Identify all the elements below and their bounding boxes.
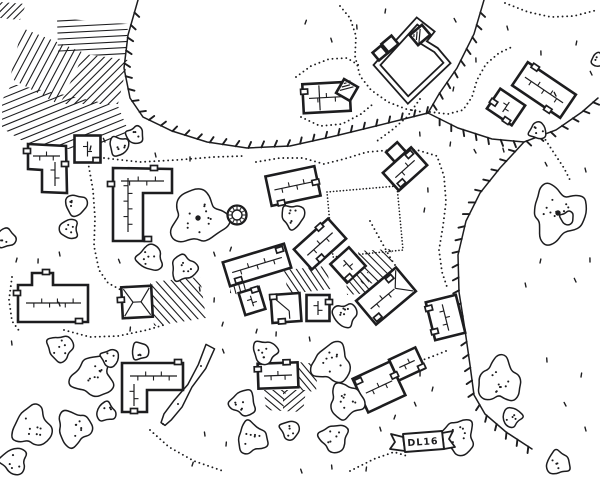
footpath [419, 350, 447, 362]
footpath [504, 2, 595, 18]
road-tick [528, 447, 529, 453]
road-tick [475, 190, 481, 191]
road-tick [465, 368, 470, 372]
road-tick [517, 439, 518, 445]
road-tick [573, 118, 579, 121]
road-tick [593, 102, 599, 104]
map-label-banner [390, 431, 455, 452]
building [108, 166, 173, 242]
road-tick [488, 138, 489, 144]
tree [254, 341, 279, 364]
road-tick [453, 277, 459, 280]
chimney [43, 270, 50, 275]
road-tick [134, 12, 139, 16]
building [330, 247, 365, 282]
road-tick [468, 393, 473, 397]
grass-tick [414, 402, 416, 406]
grass-tick [540, 259, 541, 263]
building [14, 270, 89, 324]
grass-tick [525, 283, 526, 287]
field [23, 8, 162, 147]
road [458, 142, 532, 449]
road-tick [161, 122, 166, 126]
chimney [275, 246, 283, 253]
tree [171, 189, 231, 242]
tree [528, 122, 546, 139]
grass-tick [331, 38, 332, 42]
road-tick [562, 126, 568, 129]
tree [311, 342, 351, 383]
building [265, 166, 322, 208]
chimney [62, 162, 69, 167]
grass-tick [394, 415, 395, 419]
road-tick [495, 424, 497, 430]
tree [173, 254, 199, 281]
footpath [103, 155, 242, 163]
footpath [149, 429, 222, 471]
grass-tick [574, 278, 576, 282]
chimney [277, 200, 285, 206]
chimney [301, 89, 308, 94]
road-tick [149, 116, 154, 120]
road-tick [453, 264, 459, 267]
road-tick [132, 100, 138, 101]
tree [332, 304, 357, 328]
road-tick [185, 130, 190, 135]
grass-tick [454, 18, 456, 22]
road-tick [440, 93, 443, 99]
tree [479, 355, 521, 401]
tree [59, 410, 92, 448]
building [24, 144, 69, 193]
chimney [270, 294, 277, 299]
grass-tick [450, 142, 451, 146]
tree [110, 136, 129, 156]
tree [503, 408, 523, 428]
footpath [369, 220, 398, 270]
chimney [24, 149, 31, 154]
chimney [235, 277, 243, 284]
grass-tick [222, 322, 223, 326]
road-tick [453, 290, 459, 293]
tree [66, 195, 88, 216]
road-tick [526, 141, 531, 145]
grass-tick [581, 373, 582, 377]
village-map [0, 0, 600, 481]
building [238, 286, 265, 315]
road-tick [210, 137, 214, 142]
chimney [151, 166, 158, 171]
chimney [312, 179, 320, 185]
grass-tick [301, 469, 302, 473]
chimney [117, 297, 124, 302]
tree [279, 421, 299, 440]
road-tick [472, 37, 476, 42]
grass-tick [453, 87, 454, 91]
grass-tick [155, 153, 156, 157]
road-tick [173, 126, 178, 131]
grass-tick [119, 259, 120, 263]
chimney [145, 237, 152, 242]
tree [47, 336, 74, 362]
road-tick [509, 150, 515, 152]
road-tick [500, 159, 506, 161]
grass-tick [432, 387, 433, 391]
tree [318, 425, 349, 452]
road-tick [433, 104, 437, 109]
road-tick [467, 380, 472, 384]
grass-tick [585, 168, 586, 172]
footpath [63, 324, 164, 338]
grass-tick [385, 9, 386, 13]
grass-tick [503, 148, 504, 152]
tree [133, 342, 149, 360]
tree [59, 219, 77, 238]
road-tick [236, 141, 240, 146]
tree [239, 420, 268, 454]
chimney [254, 367, 261, 372]
village-well [228, 206, 247, 225]
building [424, 295, 465, 341]
road-tick [483, 180, 489, 181]
road-tick [476, 134, 477, 140]
footpath [349, 452, 406, 472]
grass-tick [230, 247, 231, 251]
building [307, 295, 333, 321]
road-tick [261, 141, 264, 147]
grass-tick [16, 258, 17, 262]
road-tick [139, 111, 145, 112]
tree [135, 244, 162, 270]
chimney [326, 300, 333, 305]
footpath [295, 57, 359, 78]
road-tick [447, 82, 450, 88]
grass-tick [256, 329, 257, 333]
grass-tick [380, 427, 381, 431]
road-tick [197, 134, 202, 139]
road-tick [461, 60, 465, 65]
road-tick [583, 111, 589, 113]
road-tick [131, 25, 136, 29]
tree [12, 404, 52, 445]
chimney [283, 360, 290, 365]
building [485, 88, 525, 127]
grass-tick [585, 427, 586, 431]
field [41, 0, 143, 88]
road-tick [274, 141, 277, 147]
chimney [76, 319, 83, 324]
road-tick [248, 142, 251, 148]
chimney [14, 291, 21, 296]
tree [282, 206, 305, 230]
chimney [431, 328, 439, 335]
grass-tick [192, 462, 193, 466]
chimney [131, 409, 138, 414]
grass-tick [507, 26, 508, 30]
road-tick [223, 139, 227, 144]
chimney [425, 305, 433, 312]
grass-tick [309, 337, 310, 341]
tree [97, 401, 116, 421]
road-tick [125, 63, 130, 67]
dotted-paths [8, 2, 595, 472]
tree [591, 52, 600, 66]
tree [0, 448, 26, 474]
grass-tick [59, 252, 60, 256]
road-tick [476, 405, 480, 410]
grass-tick [305, 20, 306, 24]
road-tick [551, 132, 556, 136]
road-tick [491, 169, 497, 170]
footpath [542, 135, 570, 180]
road-tick [463, 355, 468, 359]
chimney [93, 158, 100, 163]
road-tick [477, 25, 482, 29]
grass-tick [90, 146, 91, 150]
tree [0, 228, 16, 248]
road-tick [480, 12, 485, 16]
grass-tick [576, 41, 577, 45]
grass-tick [204, 432, 205, 436]
road-tick [485, 416, 487, 422]
grass-tick [214, 252, 215, 256]
grass-tick [223, 349, 224, 353]
road-tick [506, 432, 507, 438]
grass-tick [545, 162, 547, 166]
grass-tick [474, 150, 476, 153]
road-tick [454, 72, 457, 78]
grass-tick [590, 71, 592, 75]
tree [228, 390, 255, 416]
grass-tick [424, 208, 425, 212]
road-tick [287, 140, 290, 146]
chimney [175, 360, 182, 365]
chimney [278, 319, 285, 324]
building [75, 136, 101, 163]
road-tick [461, 342, 466, 346]
building [117, 286, 153, 319]
map-canvas: DL16 [0, 0, 600, 481]
chimney [108, 182, 115, 187]
walled-compound [373, 21, 447, 100]
road-tick [467, 49, 471, 54]
building [270, 293, 302, 325]
tree [546, 450, 570, 474]
road-tick [463, 130, 464, 136]
grass-tick [199, 287, 200, 291]
grass-tick [564, 402, 566, 406]
road-tick [126, 50, 131, 54]
road-tick [128, 38, 133, 42]
chimney [251, 286, 259, 293]
building [223, 244, 292, 287]
